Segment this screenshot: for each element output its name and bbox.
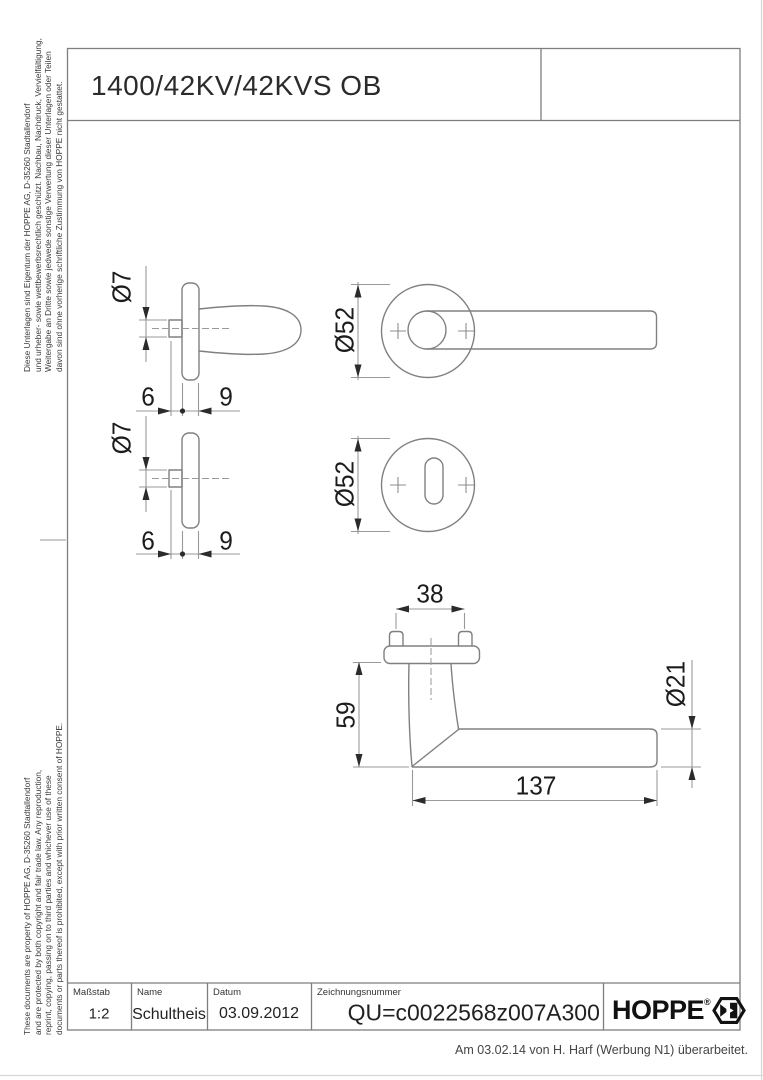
frame-border <box>68 49 741 1031</box>
rose-profile <box>182 283 199 380</box>
cross <box>390 323 406 339</box>
lever-outline <box>413 729 658 767</box>
dim-label-key-spindle-dia: Ø7 <box>107 422 138 455</box>
dim-label-handle-rose-dia: Ø52 <box>330 307 361 353</box>
date-label: Datum <box>213 987 241 998</box>
legal-text-english: These documents are property of HOPPE AG… <box>22 745 64 1035</box>
dim-label-screw-spacing: 38 <box>416 579 443 610</box>
rose-profile <box>182 433 199 528</box>
technical-drawing-canvas <box>0 0 763 1080</box>
dim-label-lever-dia: Ø21 <box>661 661 692 707</box>
dim-label-handle-spindle-dia: Ø7 <box>107 271 138 304</box>
lever-outline <box>427 311 657 349</box>
dim-label-lever-length: 137 <box>516 771 557 802</box>
hoppe-logo: HOPPE® <box>612 995 746 1026</box>
keyhole <box>425 458 443 504</box>
scale-label: Maßstab <box>73 987 110 998</box>
revision-code: A300 <box>546 1000 600 1027</box>
legal-line: documents or parts thereof is prohibited… <box>54 745 65 1035</box>
cross <box>458 323 474 339</box>
key-rose-side-view <box>169 433 199 528</box>
number-label: Zeichnungsnummer <box>317 987 401 998</box>
handle-front-view <box>382 285 657 378</box>
neck-crease <box>412 730 459 767</box>
name-label: Name <box>137 987 162 998</box>
registered-mark: ® <box>704 997 710 1007</box>
name-value: Schultheis <box>132 1006 206 1024</box>
screw-post-right <box>459 632 473 647</box>
drawing-sheet: 1400/42KV/42KVS OB Diese Unterlagen sind… <box>0 0 763 1080</box>
drawing-title: 1400/42KV/42KVS OB <box>91 70 382 102</box>
cross <box>458 477 474 493</box>
scale-value: 1:2 <box>89 1006 110 1023</box>
sheet-frame <box>0 0 763 1080</box>
screw-post-left <box>390 632 404 647</box>
handle-side-view <box>169 283 301 380</box>
neck-left-edge <box>409 664 412 767</box>
dim-label-handle-6: 6 <box>141 382 155 413</box>
legal-line: and are protected by both copyright and … <box>33 745 44 1035</box>
neck-circle <box>408 311 446 349</box>
mounted-side-view <box>384 632 657 768</box>
hoppe-hexagon-icon <box>712 996 746 1025</box>
hoppe-logo-text: HOPPE <box>612 995 704 1026</box>
legal-line: reprint, copying, passing on to third pa… <box>43 745 54 1035</box>
legal-line: und urheber- sowie wettbewerbsrechtlich … <box>33 38 44 372</box>
date-value: 03.09.2012 <box>219 1005 299 1023</box>
legal-line: davon sind ohne vorherige schriftliche Z… <box>54 38 65 372</box>
dim-label-neck-height: 59 <box>331 701 362 728</box>
part-outlines <box>169 283 657 767</box>
legal-line: Weitergabe an Dritte sowie jedwede sonst… <box>43 38 54 372</box>
dim-label-key-6: 6 <box>141 526 155 557</box>
cross <box>390 477 406 493</box>
legal-line: These documents are property of HOPPE AG… <box>22 745 33 1035</box>
dim-label-handle-9: 9 <box>219 382 233 413</box>
legal-text-german: Diese Unterlagen sind Eigentum der HOPPE… <box>22 38 64 372</box>
drawing-number: QU=c0022568z007 <box>348 1000 547 1027</box>
legal-line: Diese Unterlagen sind Eigentum der HOPPE… <box>22 38 33 372</box>
rose-plate <box>384 646 480 664</box>
revision-note: Am 03.02.14 von H. Harf (Werbung N1) übe… <box>0 1043 748 1057</box>
dim-label-key-9: 9 <box>219 526 233 557</box>
neck-right-edge <box>451 664 459 730</box>
dim-label-key-rose-dia: Ø52 <box>330 461 361 507</box>
grip-profile <box>199 306 301 355</box>
